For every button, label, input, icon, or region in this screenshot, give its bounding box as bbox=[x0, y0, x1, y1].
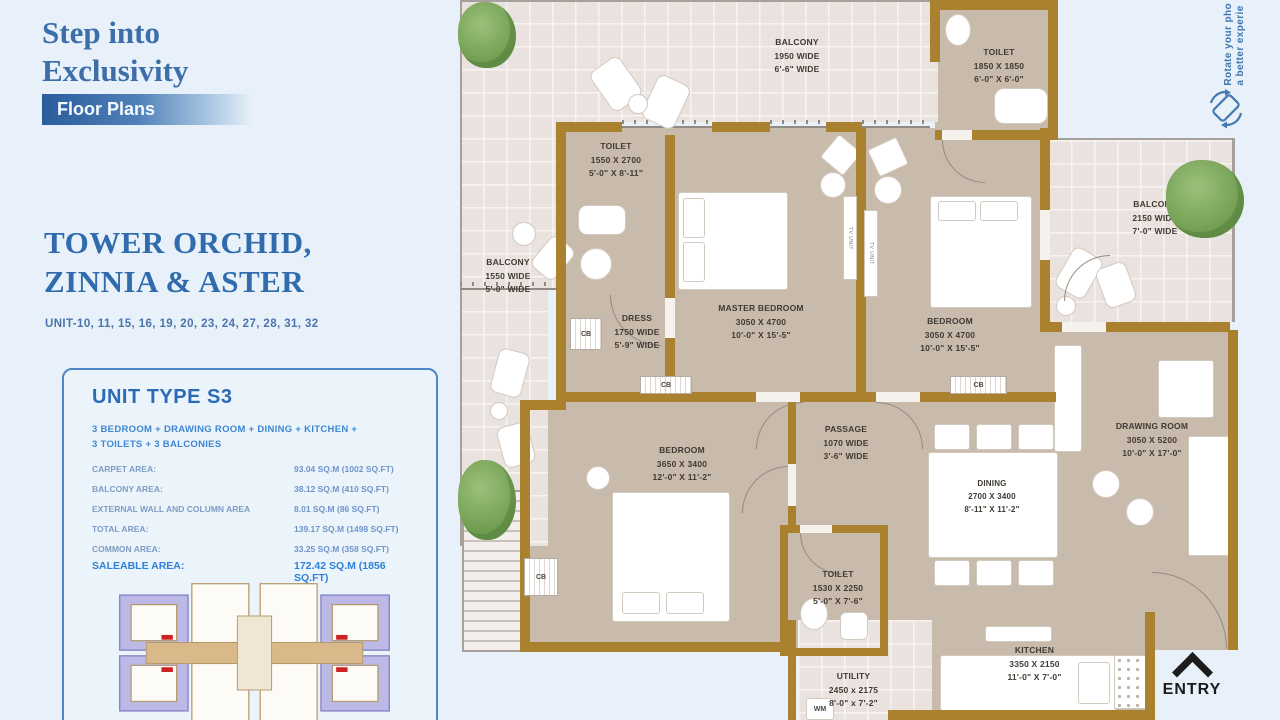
rotate-phone-icon bbox=[1206, 88, 1246, 130]
pillow bbox=[683, 242, 705, 282]
area-row-total: TOTAL AREA:139.17 SQ.M (1498 SQ.FT) bbox=[92, 524, 422, 544]
room-label-dining: DINING2700 X 34008'-11" X 11'-2" bbox=[930, 478, 1054, 516]
tagline-line1: Step into bbox=[42, 14, 188, 52]
room-label-drawing-room: DRAWING ROOM3050 X 520010'-0" X 17'-0" bbox=[1072, 420, 1232, 461]
area-row-carpet: CARPET AREA:93.04 SQ.M (1002 SQ.FT) bbox=[92, 464, 422, 484]
wall bbox=[930, 0, 1050, 10]
wall bbox=[888, 710, 1145, 720]
dining-chair bbox=[976, 424, 1012, 450]
key-plan-map bbox=[112, 578, 397, 720]
side-table bbox=[874, 176, 902, 204]
balcony-right-edge-top bbox=[1048, 138, 1234, 140]
room-label-kitchen: KITCHEN3350 X 215011'-0" X 7'-0" bbox=[972, 644, 1097, 685]
room-label-dress: DRESS1750 WIDE5'-9" WIDE bbox=[592, 312, 682, 353]
tower-title-line2: ZINNIA & ASTER bbox=[44, 263, 312, 302]
wall bbox=[520, 400, 566, 410]
area-row-balcony: BALCONY AREA:38.12 SQ.M (410 SQ.FT) bbox=[92, 484, 422, 504]
balcony-table bbox=[490, 402, 508, 420]
side-table bbox=[586, 466, 610, 490]
pillow bbox=[622, 592, 660, 614]
seat bbox=[1158, 360, 1214, 418]
window-gap bbox=[1040, 210, 1050, 260]
tree-icon bbox=[458, 460, 516, 540]
side-table bbox=[820, 172, 846, 198]
wall bbox=[665, 135, 675, 392]
door-gap bbox=[788, 464, 796, 506]
floor-plan-page: Step into Exclusivity Floor Plans TOWER … bbox=[0, 0, 1280, 720]
wall bbox=[556, 128, 566, 402]
balcony-right-edge-right bbox=[1232, 138, 1235, 322]
railing-window-2 bbox=[770, 120, 826, 128]
area-row-external: EXTERNAL WALL AND COLUMN AREA8.01 SQ.M (… bbox=[92, 504, 422, 524]
dining-chair bbox=[1018, 424, 1054, 450]
wall bbox=[712, 122, 770, 132]
bathtub bbox=[994, 88, 1048, 124]
tv-unit: TV UNIT bbox=[843, 196, 857, 280]
dining-chair bbox=[934, 560, 970, 586]
room-label-balcony-top: BALCONY1950 WIDE6'-6" WIDE bbox=[742, 36, 852, 77]
room-label-master-bedroom: MASTER BEDROOM3050 X 470010'-0" X 15'-5" bbox=[672, 302, 850, 343]
balcony-table bbox=[512, 222, 536, 246]
rotate-device-hint: Rotate your pho a better experie bbox=[1223, 3, 1246, 86]
room-label-bedroom3: BEDROOM3650 X 340012'-0" X 11'-2" bbox=[622, 444, 742, 485]
door-gap bbox=[756, 392, 800, 402]
pillow bbox=[666, 592, 704, 614]
room-label-toilet-master: TOILET1550 X 27005'-0" X 8'-11" bbox=[568, 140, 664, 181]
dining-chair bbox=[976, 560, 1012, 586]
cupboard: CB bbox=[950, 376, 1007, 394]
wall bbox=[1145, 612, 1155, 720]
tree-icon bbox=[458, 2, 516, 68]
pouf bbox=[1092, 470, 1120, 498]
unit-numbers: UNIT-10, 11, 15, 16, 19, 20, 23, 24, 27,… bbox=[45, 318, 319, 330]
door-gap bbox=[800, 525, 832, 533]
dining-chair bbox=[1018, 560, 1054, 586]
unit-type-title: UNIT TYPE S3 bbox=[92, 386, 232, 409]
door-gap bbox=[1062, 322, 1106, 332]
kitchen-cabinet bbox=[985, 626, 1052, 642]
room-label-passage: PASSAGE1070 WIDE3'-6" WIDE bbox=[800, 423, 892, 464]
unit-type-card: UNIT TYPE S3 3 BEDROOM + DRAWING ROOM + … bbox=[62, 368, 438, 720]
wall bbox=[788, 620, 796, 720]
door-gap bbox=[876, 392, 920, 402]
pouf bbox=[1126, 498, 1154, 526]
tree-icon bbox=[1166, 160, 1244, 238]
page-tagline: Step into Exclusivity bbox=[42, 14, 188, 90]
tower-title: TOWER ORCHID, ZINNIA & ASTER bbox=[44, 224, 312, 302]
wall bbox=[1228, 330, 1238, 650]
room-label-balcony-left: BALCONY1550 WIDE5'-0" WIDE bbox=[462, 256, 554, 297]
balcony-table bbox=[628, 94, 648, 114]
room-label-utility: UTILITY2450 x 21758'-0" x 7'-2" bbox=[806, 670, 901, 711]
railing-window-3 bbox=[862, 120, 930, 128]
dining-chair bbox=[934, 424, 970, 450]
tagline-line2: Exclusivity bbox=[42, 52, 188, 90]
tower-title-line1: TOWER ORCHID, bbox=[44, 224, 312, 263]
wash-basin bbox=[840, 612, 868, 640]
wall bbox=[780, 525, 788, 656]
room-label-toilet-top: TOILET1850 X 18506'-0" X 6'-0" bbox=[950, 46, 1048, 87]
cupboard: CB bbox=[640, 376, 692, 394]
wall bbox=[780, 648, 888, 656]
floor-plans-badge-label: Floor Plans bbox=[57, 99, 155, 120]
rotate-hint-line1: Rotate your pho bbox=[1223, 3, 1234, 86]
pillow bbox=[980, 201, 1018, 221]
wc bbox=[945, 14, 971, 46]
room-label-toilet3: TOILET1530 X 22505'-0" X 7'-6" bbox=[790, 568, 886, 609]
area-row-saleable: SALEABLE AREA:172.42 SQ.M (1856 SQ.FT) bbox=[92, 560, 422, 572]
wall bbox=[520, 642, 788, 652]
room-label-bedroom2: BEDROOM3050 X 470010'-0" X 15'-5" bbox=[885, 315, 1015, 356]
rotate-hint-line2: a better experie bbox=[1235, 3, 1246, 86]
floor-plans-badge: Floor Plans bbox=[42, 94, 253, 125]
pillow bbox=[938, 201, 976, 221]
tv-unit: TV UNIT bbox=[864, 210, 878, 297]
pillow bbox=[683, 198, 705, 238]
wc bbox=[578, 205, 626, 235]
balcony-edge-top bbox=[460, 0, 938, 2]
wall bbox=[520, 400, 530, 650]
wall bbox=[1048, 0, 1058, 140]
unit-configuration: 3 BEDROOM + DRAWING ROOM + DINING + KITC… bbox=[92, 422, 402, 452]
cupboard: CB bbox=[524, 558, 558, 596]
kitchen-rug bbox=[1114, 655, 1148, 709]
door-gap bbox=[942, 130, 972, 140]
entry-marker: ENTRY bbox=[1156, 658, 1228, 699]
wash-basin bbox=[580, 248, 612, 280]
